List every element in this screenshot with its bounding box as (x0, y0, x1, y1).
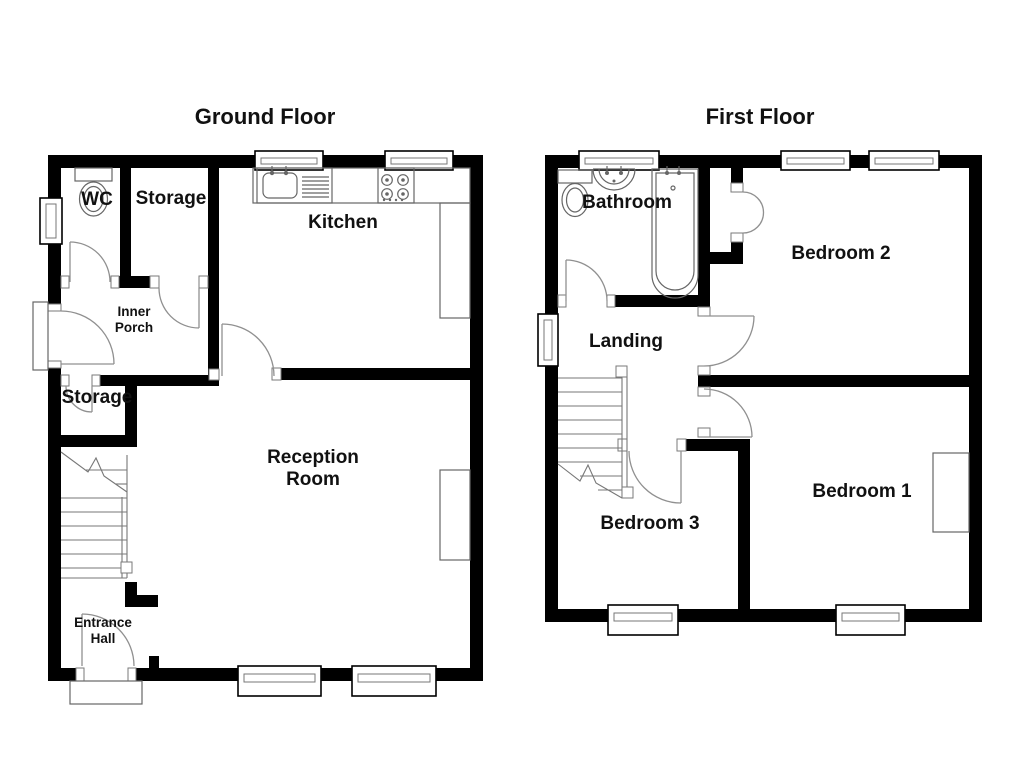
kitchen-window-1 (255, 151, 323, 170)
front-door-opening (76, 668, 136, 681)
porch-side-door-step (33, 302, 48, 370)
room-label-bathroom: Bathroom (582, 192, 672, 213)
kitchen-counter (253, 168, 470, 318)
kitchen-sink-icon (257, 166, 332, 203)
wc-window (40, 198, 62, 244)
first-floor-plan: First Floor Bathroom Bedroom 2 Landing B… (538, 104, 982, 635)
landing-window (538, 314, 558, 366)
bathroom-door (566, 260, 607, 301)
bedroom1-window (836, 605, 905, 635)
cupboard-double-doors (743, 192, 764, 233)
room-label-entrance-1: Entrance (74, 615, 132, 630)
room-label-inner-porch-2: Porch (115, 320, 153, 335)
kitchen-window-2 (385, 151, 453, 170)
room-label-bedroom2: Bedroom 2 (791, 243, 890, 264)
room-label-landing: Landing (589, 331, 663, 352)
room-label-entrance-2: Hall (91, 631, 116, 646)
first-floor-title: First Floor (706, 104, 815, 129)
room-label-storage-lower: Storage (62, 387, 133, 408)
room-label-bedroom3: Bedroom 3 (600, 513, 699, 534)
room-label-kitchen: Kitchen (308, 212, 378, 233)
bedroom2-window-2 (869, 151, 939, 170)
room-label-wc: WC (81, 189, 113, 210)
floorplan-canvas: Ground Floor WC Storage Kitchen Inner Po… (0, 0, 1024, 768)
chimney-breast (933, 453, 969, 532)
ground-interior-walls (61, 168, 470, 669)
ground-floor-title: Ground Floor (195, 104, 336, 129)
storage-top-door (159, 288, 199, 328)
ground-floor-plan: Ground Floor WC Storage Kitchen Inner Po… (33, 104, 483, 704)
first-exterior-walls (545, 155, 982, 622)
bathroom-window (579, 151, 659, 170)
room-label-reception-2: Room (286, 469, 340, 490)
bedroom2-window-1 (781, 151, 850, 170)
room-label-bedroom1: Bedroom 1 (812, 481, 912, 502)
wc-door (70, 242, 110, 282)
floorplan-drawing: Ground Floor WC Storage Kitchen Inner Po… (0, 0, 1024, 768)
staircase-first (558, 366, 633, 498)
kitchen-door (222, 324, 274, 376)
bedroom2-door (704, 316, 754, 366)
room-label-storage-top: Storage (136, 188, 207, 209)
bathtub-icon (652, 166, 698, 298)
bedroom3-window (608, 605, 678, 635)
reception-window-2 (352, 666, 436, 696)
bedroom1-door (704, 389, 752, 437)
porch-side-door-opening (48, 304, 61, 368)
reception-window-1 (238, 666, 321, 696)
fireplace (440, 470, 470, 560)
bedroom3-door (629, 451, 681, 503)
room-label-inner-porch-1: Inner (117, 304, 151, 319)
porch-side-door (61, 311, 114, 364)
first-interior-walls (615, 168, 969, 609)
ground-exterior-walls (48, 155, 483, 681)
room-label-reception-1: Reception (267, 447, 359, 468)
stove-icon (378, 168, 414, 203)
staircase-ground (61, 452, 132, 578)
first-door-jambs (558, 183, 743, 451)
front-door-step (70, 681, 142, 704)
